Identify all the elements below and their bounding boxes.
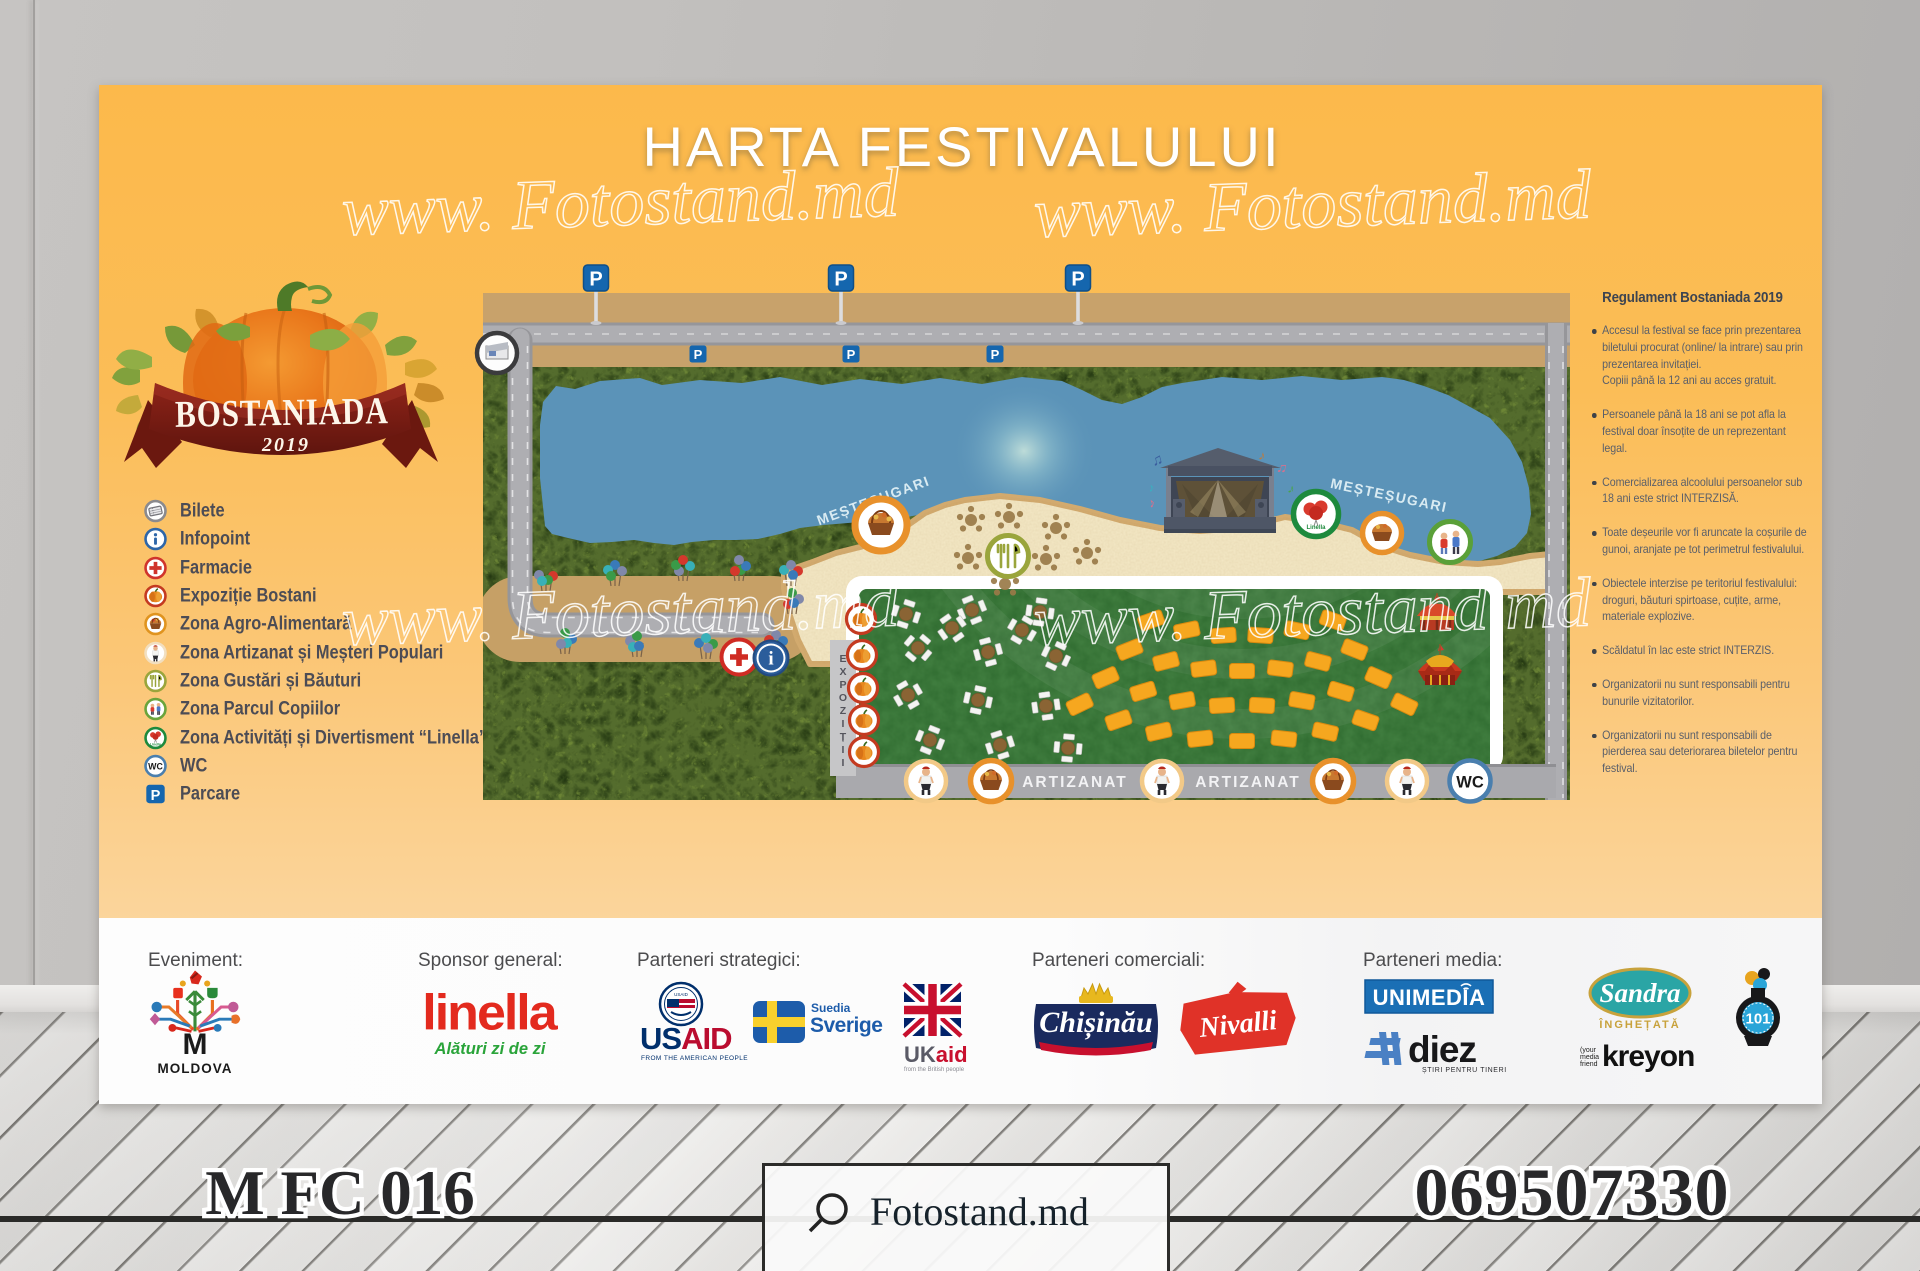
svg-text:P: P xyxy=(847,347,856,362)
svg-text:ȘTIRI PENTRU TINERI: ȘTIRI PENTRU TINERI xyxy=(1422,1067,1507,1074)
svg-text:Sandra: Sandra xyxy=(1599,978,1680,1008)
svg-text:X: X xyxy=(839,666,846,678)
svg-text:USAID: USAID xyxy=(640,1021,732,1056)
svg-text:USAID: USAID xyxy=(674,992,689,997)
svg-text:from the British people: from the British people xyxy=(904,1067,965,1073)
svg-text:069507330: 069507330 xyxy=(1415,1154,1730,1230)
svg-text:Fotostand.md: Fotostand.md xyxy=(870,1189,1089,1234)
svg-text:ARTIZANAT: ARTIZANAT xyxy=(1195,774,1301,791)
svg-text:I: I xyxy=(842,757,845,769)
svg-text:P: P xyxy=(1071,269,1084,291)
svg-text:Parteneri media:: Parteneri media: xyxy=(1363,950,1502,971)
svg-text:101: 101 xyxy=(1745,1011,1770,1028)
svg-text:Eveniment:: Eveniment: xyxy=(148,950,243,971)
svg-text:P: P xyxy=(834,269,847,291)
svg-text:Suedia: Suedia xyxy=(811,1001,851,1015)
svg-text:P: P xyxy=(694,347,703,362)
svg-text:Sverige: Sverige xyxy=(810,1014,882,1037)
svg-text:Chișinău: Chișinău xyxy=(1039,1006,1152,1040)
svg-text:Z: Z xyxy=(840,705,847,717)
svg-text:Parteneri comerciali:: Parteneri comerciali: xyxy=(1032,950,1205,971)
svg-text:M: M xyxy=(183,1028,208,1061)
svg-text:ARTIZANAT: ARTIZANAT xyxy=(1022,774,1128,791)
svg-text:FROM THE AMERICAN PEOPLE: FROM THE AMERICAN PEOPLE xyxy=(641,1055,748,1062)
svg-text:kreyon: kreyon xyxy=(1602,1040,1694,1073)
svg-text:friend: friend xyxy=(1580,1061,1598,1068)
svg-text:diez: diez xyxy=(1408,1029,1476,1070)
svg-text:UKaid: UKaid xyxy=(904,1042,968,1067)
svg-text:Ț: Ț xyxy=(840,731,847,743)
svg-text:P: P xyxy=(589,269,602,291)
svg-text:O: O xyxy=(839,692,847,704)
svg-text:Alături zi de zi: Alături zi de zi xyxy=(434,1040,546,1058)
svg-text:Linella: Linella xyxy=(1306,525,1326,531)
svg-text:linella: linella xyxy=(422,984,558,1040)
svg-text:2019: 2019 xyxy=(261,434,310,456)
svg-text:I: I xyxy=(842,718,845,730)
svg-text:I: I xyxy=(842,744,845,756)
svg-text:WC: WC xyxy=(1456,774,1484,792)
svg-text:i: i xyxy=(768,649,773,670)
svg-text:Sponsor general:: Sponsor general: xyxy=(418,950,563,971)
svg-text:P: P xyxy=(991,347,1000,362)
svg-text:E: E xyxy=(839,653,846,665)
svg-text:P: P xyxy=(839,679,846,691)
svg-text:(your: (your xyxy=(1580,1047,1597,1054)
svg-text:M FC 016: M FC 016 xyxy=(205,1158,474,1228)
svg-text:MOLDOVA: MOLDOVA xyxy=(158,1061,233,1076)
svg-text:Parteneri strategici:: Parteneri strategici: xyxy=(637,950,801,971)
svg-text:ÎNGHEȚATĂ: ÎNGHEȚATĂ xyxy=(1598,1018,1680,1031)
svg-text:media: media xyxy=(1580,1054,1599,1061)
svg-text:BOSTANIADA: BOSTANIADA xyxy=(175,389,389,435)
